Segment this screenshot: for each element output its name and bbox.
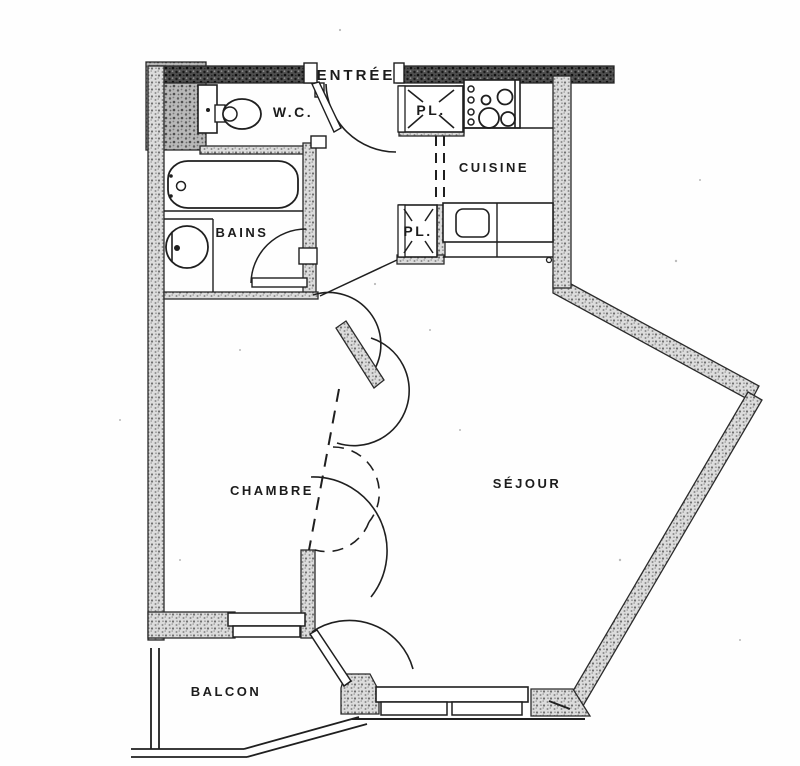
label-placard-1: PL. (416, 102, 445, 118)
label-cuisine: CUISINE (459, 160, 529, 175)
label-bains: BAINS (216, 225, 269, 240)
label-entree: ENTRÉE (317, 67, 396, 84)
toilet-button (206, 108, 210, 112)
bay-window-upper-band (376, 687, 528, 702)
chambre-window (228, 613, 305, 637)
label-sejour: SÉJOUR (493, 476, 561, 491)
cap-entry-right (394, 63, 404, 83)
cap-entry-left (304, 63, 317, 83)
bains-door-leaf (252, 278, 307, 287)
wall-chambre-top (164, 292, 318, 299)
floor-plan-page: ENTRÉE W.C. CUISINE BAINS PL. PL. CHAMBR… (0, 0, 800, 766)
cap-vestibule (299, 248, 317, 264)
sink-basin (456, 209, 489, 237)
basin-tap (174, 245, 180, 251)
wall-chambre-bottom (148, 612, 235, 638)
wall-wc-bains-divider (200, 146, 305, 154)
chambre-window-inner (233, 626, 300, 637)
label-placard-2: PL. (403, 223, 432, 239)
toilet-bowl-inner (223, 107, 237, 121)
floor-plan-drawing: ENTRÉE W.C. CUISINE BAINS PL. PL. CHAMBR… (0, 0, 800, 766)
bathtub-tap-2 (169, 194, 173, 198)
wall-kitchen-right (553, 76, 571, 288)
label-wc: W.C. (273, 104, 313, 120)
bathtub-tap-1 (169, 174, 173, 178)
closet1-jamb (398, 86, 405, 132)
bathtub-drain (177, 182, 186, 191)
chambre-window-outer (228, 613, 305, 626)
bay-window-lower-right (452, 702, 522, 715)
wall-left (148, 66, 164, 640)
cap-wc-door-bottom (311, 136, 326, 148)
bathtub (164, 161, 303, 211)
wall-top-left-segment (150, 66, 313, 83)
bathtub-rim (168, 161, 298, 208)
label-chambre: CHAMBRE (230, 483, 314, 498)
bay-window-lower-left (381, 702, 447, 715)
label-balcon: BALCON (191, 684, 262, 699)
wall-vestibule (303, 143, 316, 298)
